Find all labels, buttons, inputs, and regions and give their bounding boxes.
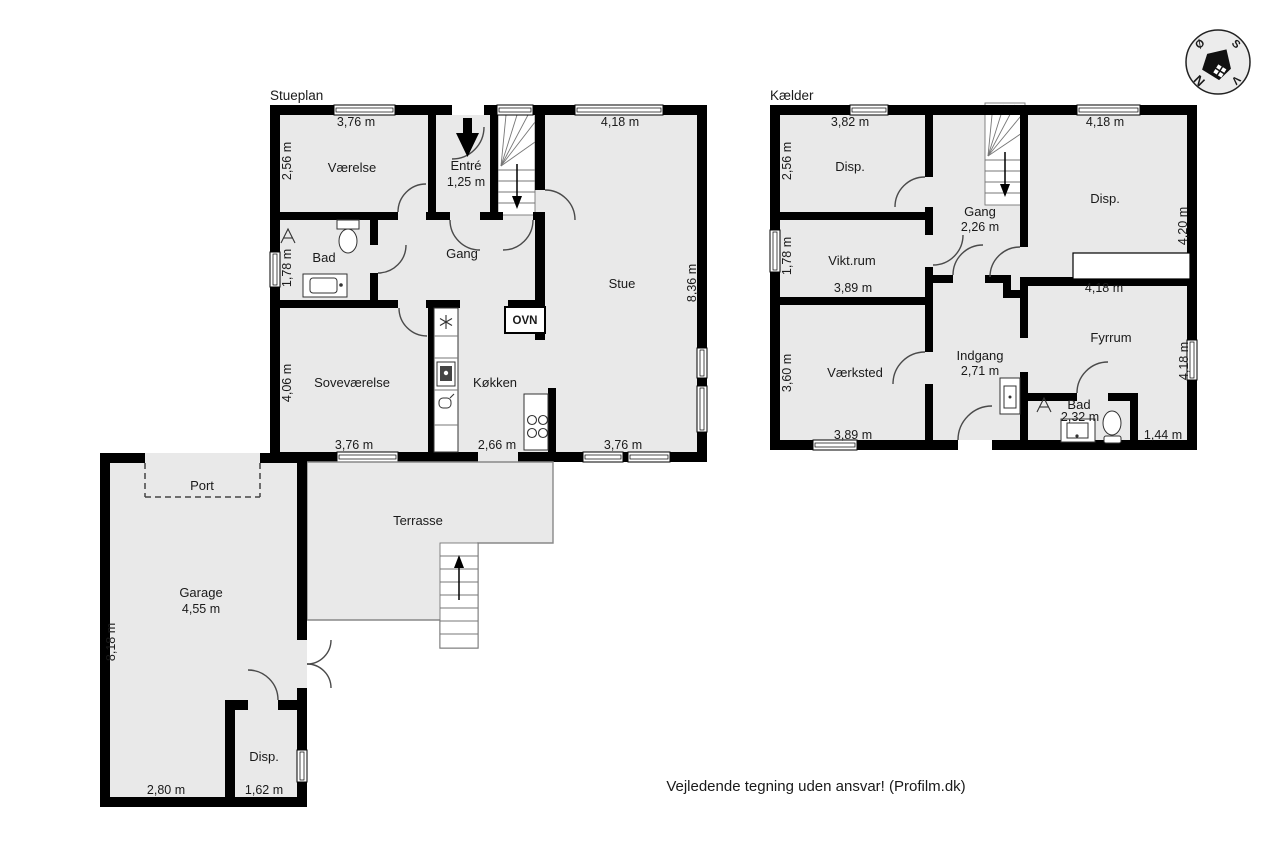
room-label-bad: Bad bbox=[312, 250, 335, 265]
room-label-fyrrum: Fyrrum bbox=[1090, 330, 1131, 345]
room-label-disp: Disp. bbox=[249, 749, 279, 764]
room-label-entre: Entré bbox=[450, 158, 481, 173]
terrace-area bbox=[307, 462, 553, 648]
room-label-stue: Stue bbox=[609, 276, 636, 291]
floorplan-page: OVN bbox=[0, 0, 1280, 853]
measure: 3,89 m bbox=[834, 428, 872, 442]
utility-sink-icon bbox=[1000, 378, 1020, 414]
measure: 1,62 m bbox=[245, 783, 283, 797]
window bbox=[297, 750, 307, 782]
room-label-vaerelse: Værelse bbox=[328, 160, 376, 175]
oven-label: OVN bbox=[513, 315, 538, 327]
measure: 2,80 m bbox=[147, 783, 185, 797]
measure: 4,18 m bbox=[1085, 281, 1123, 295]
window bbox=[697, 348, 707, 378]
measure: 4,20 m bbox=[1176, 207, 1190, 245]
terrace-stairs bbox=[440, 543, 478, 648]
window bbox=[497, 105, 533, 115]
measure: 1,78 m bbox=[280, 249, 294, 287]
disclaimer-text: Vejledende tegning uden ansvar! (Profilm… bbox=[666, 778, 965, 795]
stove-icon bbox=[524, 394, 548, 450]
measure: 4,18 m bbox=[1086, 115, 1124, 129]
measure: 8,36 m bbox=[685, 264, 699, 302]
measure: 4,18 m bbox=[1177, 342, 1191, 380]
measure: 3,76 m bbox=[337, 115, 375, 129]
measure: 3,60 m bbox=[780, 354, 794, 392]
measure: 2,26 m bbox=[961, 220, 999, 234]
measure: 2,66 m bbox=[478, 438, 516, 452]
room-label-gang: Gang bbox=[446, 246, 478, 261]
sink-icon bbox=[437, 362, 455, 386]
window bbox=[583, 452, 623, 462]
terrace-door-opening bbox=[478, 452, 518, 462]
measure: 4,06 m bbox=[280, 364, 294, 402]
window bbox=[575, 105, 663, 115]
window bbox=[697, 386, 707, 432]
measure: 8,18 m bbox=[104, 623, 118, 661]
measure: 2,56 m bbox=[780, 142, 794, 180]
room-label-sovevaerelse: Soveværelse bbox=[314, 375, 390, 390]
room-label-disp-right: Disp. bbox=[1090, 191, 1120, 206]
oven-box: OVN bbox=[505, 307, 545, 333]
stueplan-title: Stueplan bbox=[270, 88, 323, 103]
compass-rose: N S Ø V bbox=[1186, 30, 1250, 94]
measure: 2,56 m bbox=[280, 142, 294, 180]
room-label-gang: Gang bbox=[964, 204, 996, 219]
room-label-koekken: Køkken bbox=[473, 375, 517, 390]
garage-plan: Port Garage 4,55 m 8,18 m 2,80 m Disp. 1… bbox=[100, 453, 553, 807]
window bbox=[270, 252, 280, 287]
room-label-indgang: Indgang bbox=[957, 348, 1004, 363]
counter bbox=[1073, 253, 1190, 279]
room-label-disp-left: Disp. bbox=[835, 159, 865, 174]
room-label-garage: Garage bbox=[179, 585, 222, 600]
staircase-ground bbox=[498, 113, 535, 215]
measure: 4,18 m bbox=[601, 115, 639, 129]
window bbox=[770, 230, 780, 272]
measure: 1,25 m bbox=[447, 175, 485, 189]
washbasin-icon bbox=[303, 274, 347, 297]
window bbox=[850, 105, 888, 115]
stueplan-plan: OVN bbox=[270, 88, 707, 492]
toilet-icon bbox=[1103, 411, 1121, 443]
toilet-icon bbox=[337, 220, 359, 253]
window bbox=[334, 105, 395, 115]
window bbox=[1077, 105, 1140, 115]
room-label-vaerksted: Værksted bbox=[827, 365, 883, 380]
kaelder-plan: Kælder 3,82 m 4,18 m Disp. 2,56 m Gang 2… bbox=[770, 88, 1197, 450]
basement-entrance-opening bbox=[958, 440, 992, 450]
measure: 3,82 m bbox=[831, 115, 869, 129]
label-port: Port bbox=[190, 478, 214, 493]
measure: 2,71 m bbox=[961, 364, 999, 378]
window bbox=[628, 452, 670, 462]
measure: 1,44 m bbox=[1144, 428, 1182, 442]
kaelder-title: Kælder bbox=[770, 88, 814, 103]
floorplan-canvas: OVN bbox=[0, 0, 1280, 853]
measure: 4,55 m bbox=[182, 602, 220, 616]
entrance-opening bbox=[452, 105, 484, 115]
room-label-terrasse: Terrasse bbox=[393, 513, 443, 528]
staircase-basement bbox=[985, 103, 1025, 205]
measure: 3,76 m bbox=[335, 438, 373, 452]
measure: 3,76 m bbox=[604, 438, 642, 452]
window bbox=[337, 452, 398, 462]
measure: 1,78 m bbox=[780, 237, 794, 275]
measure: 2,32 m bbox=[1061, 410, 1099, 424]
room-label-vikt: Vikt.rum bbox=[828, 253, 875, 268]
measure: 3,89 m bbox=[834, 281, 872, 295]
